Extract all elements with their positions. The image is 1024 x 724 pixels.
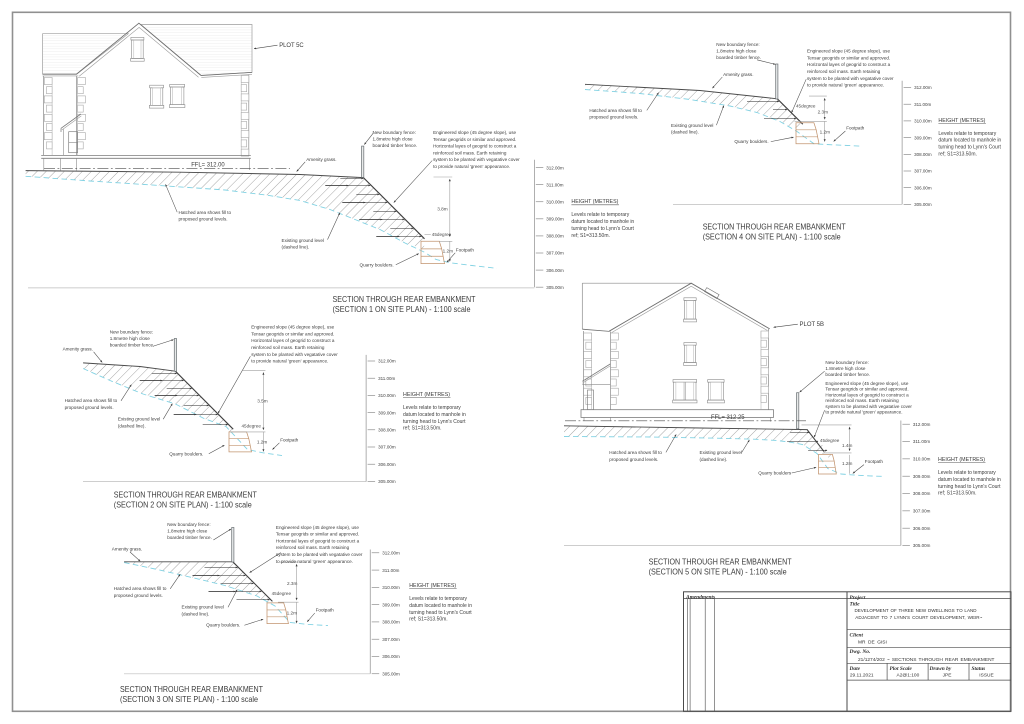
svg-text:HEIGHT (METRES): HEIGHT (METRES) <box>571 199 618 205</box>
svg-text:306.00m: 306.00m <box>378 462 396 467</box>
svg-text:1.2m: 1.2m <box>820 129 831 134</box>
svg-text:proposed ground levels.: proposed ground levels. <box>609 457 658 462</box>
svg-text:45degree: 45degree <box>432 232 452 237</box>
svg-text:JPE: JPE <box>943 672 952 678</box>
svg-text:ISSUE: ISSUE <box>979 672 993 678</box>
svg-text:A2@1:100: A2@1:100 <box>897 672 920 678</box>
svg-text:307.00m: 307.00m <box>546 251 564 256</box>
svg-text:308.00m: 308.00m <box>546 234 564 239</box>
svg-text:reinforced soil mass. Earth r: reinforced soil mass. Earth retaining <box>251 345 325 350</box>
svg-text:New boundary fence:: New boundary fence: <box>167 522 210 527</box>
svg-text:reinforced soil mass. Earth r: reinforced soil mass. Earth retaining <box>825 398 899 403</box>
svg-text:Quarry boulders: Quarry boulders <box>758 470 792 475</box>
svg-text:to provide natural 'green' app: to provide natural 'green' appearance. <box>807 83 884 88</box>
svg-text:29.11.2021: 29.11.2021 <box>850 672 874 678</box>
svg-text:datum located to manhole in: datum located to manhole in <box>938 477 1001 483</box>
svg-text:Amenity grass.: Amenity grass. <box>112 547 142 552</box>
svg-text:1.2m: 1.2m <box>287 611 298 616</box>
svg-text:309.00m: 309.00m <box>546 217 564 222</box>
svg-text:45degree: 45degree <box>820 438 840 443</box>
svg-text:305.00m: 305.00m <box>546 285 564 290</box>
svg-text:FFL= 312.00: FFL= 312.00 <box>191 162 225 169</box>
svg-text:New boundary fence:: New boundary fence: <box>373 130 416 135</box>
svg-text:Dwg. No.: Dwg. No. <box>849 649 871 655</box>
svg-text:ref; S1=313.50m.: ref; S1=313.50m. <box>938 491 977 497</box>
svg-text:Horizontal layes of geogrid to: Horizontal layes of geogrid to construct… <box>251 338 335 343</box>
svg-text:312.00m: 312.00m <box>913 422 931 427</box>
svg-text:Existing ground level: Existing ground level <box>282 238 324 243</box>
svg-text:SECTION THROUGH REAR EMBANKMEN: SECTION THROUGH REAR EMBANKMENT <box>703 222 846 231</box>
svg-text:306.00m: 306.00m <box>382 654 400 659</box>
svg-text:ref; S1=313.50m.: ref; S1=313.50m. <box>571 233 610 239</box>
svg-text:system to be planted with vega: system to be planted with vegatative cov… <box>433 157 520 162</box>
svg-text:Client: Client <box>850 632 864 638</box>
svg-text:turning head to Lynn's Court: turning head to Lynn's Court <box>938 145 1001 151</box>
svg-text:Existing ground level: Existing ground level <box>182 605 224 610</box>
svg-text:306.00m: 306.00m <box>914 185 932 190</box>
svg-text:Amenity grass.: Amenity grass. <box>306 157 336 162</box>
svg-text:Horizontal layes of geogrid to: Horizontal layes of geogrid to construct… <box>433 144 517 149</box>
svg-text:Horizontal layes of geogrid to: Horizontal layes of geogrid to construct… <box>825 392 909 397</box>
svg-text:2.3m: 2.3m <box>818 109 829 114</box>
svg-text:reinforced soil mass. Earth r: reinforced soil mass. Earth retaining <box>433 150 507 155</box>
svg-text:ref; S1=313.50m.: ref; S1=313.50m. <box>403 426 442 432</box>
svg-text:(SECTION 5 ON SITE PLAN) - 1:1: (SECTION 5 ON SITE PLAN) - 1:100 scale <box>649 567 787 576</box>
svg-text:310.00m: 310.00m <box>378 393 396 398</box>
svg-text:312.00m: 312.00m <box>914 85 932 90</box>
svg-text:Horizontal layes of geogrid to: Horizontal layes of geogrid to construct… <box>807 62 891 67</box>
svg-text:Amendments: Amendments <box>685 595 715 601</box>
svg-text:reinforced soil mass. Earth r: reinforced soil mass. Earth retaining <box>276 545 350 550</box>
svg-text:1.2m: 1.2m <box>842 461 853 466</box>
svg-text:(dashed line).: (dashed line). <box>671 130 699 135</box>
svg-text:(dashed line).: (dashed line). <box>182 611 210 616</box>
svg-text:turning head to Lynn's Court: turning head to Lynn's Court <box>403 419 466 425</box>
svg-text:305.00m: 305.00m <box>382 671 400 676</box>
svg-text:312.00m: 312.00m <box>382 551 400 556</box>
svg-text:Levels relate to temporary: Levels relate to temporary <box>938 131 996 137</box>
svg-text:HEIGHT (METRES): HEIGHT (METRES) <box>409 583 456 589</box>
svg-text:Quarry boulders.: Quarry boulders. <box>206 623 240 628</box>
svg-text:SECTION THROUGH REAR EMBANKMEN: SECTION THROUGH REAR EMBANKMENT <box>649 558 792 567</box>
svg-text:Levels relate to temporary: Levels relate to temporary <box>403 405 461 411</box>
svg-text:turning head to Lynn's Court: turning head to Lynn's Court <box>571 226 634 232</box>
svg-text:Existing ground level: Existing ground level <box>700 450 742 455</box>
svg-text:309.00m: 309.00m <box>382 602 400 607</box>
svg-text:308.00m: 308.00m <box>913 491 931 496</box>
svg-text:Hatched area shows fill to: Hatched area shows fill to <box>179 210 232 215</box>
svg-text:proposed ground levels.: proposed ground levels. <box>589 115 638 120</box>
svg-text:Status: Status <box>972 666 986 672</box>
svg-text:Engineered slope (45 degree sl: Engineered slope (45 degree slope), use <box>251 325 334 330</box>
svg-text:(SECTION 3 ON SITE PLAN) - 1:1: (SECTION 3 ON SITE PLAN) - 1:100 scale <box>120 695 258 704</box>
svg-text:SECTION THROUGH REAR EMBANKMEN: SECTION THROUGH REAR EMBANKMENT <box>120 685 263 694</box>
svg-text:boarded timber fence.: boarded timber fence. <box>167 535 212 540</box>
svg-text:datum located to manhole in: datum located to manhole in <box>571 219 634 225</box>
svg-text:Date: Date <box>849 666 861 672</box>
svg-text:Footpath: Footpath <box>865 459 884 464</box>
svg-text:HEIGHT (METRES): HEIGHT (METRES) <box>403 392 450 398</box>
svg-text:system to be planted with vega: system to be planted with vegatative cov… <box>807 76 894 81</box>
svg-text:proposed ground levels.: proposed ground levels. <box>114 593 163 598</box>
svg-text:FFL= 312.25: FFL= 312.25 <box>711 414 745 421</box>
svg-text:proposed ground levels.: proposed ground levels. <box>65 405 114 410</box>
svg-text:system to be planted with vega: system to be planted with vegatative cov… <box>251 352 338 357</box>
svg-text:Footpath: Footpath <box>456 247 475 252</box>
svg-text:Tensar geogrids or similar and: Tensar geogrids or similar and approved. <box>433 137 516 142</box>
svg-text:307.00m: 307.00m <box>914 169 932 174</box>
svg-text:310.00m: 310.00m <box>913 457 931 462</box>
svg-text:305.00m: 305.00m <box>914 202 932 207</box>
svg-text:Tensar geogrids or similar and: Tensar geogrids or similar and approved. <box>825 387 908 392</box>
svg-text:Amenity grass.: Amenity grass. <box>63 347 93 352</box>
svg-text:Hatched area shows fill to: Hatched area shows fill to <box>65 398 118 403</box>
svg-text:309.00m: 309.00m <box>914 135 932 140</box>
svg-text:Existing ground level: Existing ground level <box>671 123 713 128</box>
svg-text:Amenity grass.: Amenity grass. <box>723 72 753 77</box>
svg-text:Tensar geogrids or similar and: Tensar geogrids or similar and approved. <box>251 331 334 336</box>
svg-text:311.00m: 311.00m <box>378 376 395 381</box>
svg-text:reinforced soil mass. Earth r: reinforced soil mass. Earth retaining <box>807 69 881 74</box>
svg-text:3.5m: 3.5m <box>257 399 268 404</box>
svg-text:PLOT 5C: PLOT 5C <box>279 42 304 49</box>
svg-text:309.00m: 309.00m <box>913 474 931 479</box>
svg-text:Hatched area shows fill to: Hatched area shows fill to <box>114 586 167 591</box>
svg-text:1.8metre high close: 1.8metre high close <box>110 336 151 341</box>
svg-text:307.00m: 307.00m <box>382 637 400 642</box>
svg-text:1.2m: 1.2m <box>443 249 454 254</box>
svg-text:datum located to manhole in: datum located to manhole in <box>938 138 1001 144</box>
svg-text:system to be planted with vega: system to be planted with vegatative cov… <box>276 552 363 557</box>
svg-text:Hatched area shows fill to: Hatched area shows fill to <box>609 450 662 455</box>
svg-text:Footpath: Footpath <box>280 437 299 442</box>
svg-text:Engineered slope (45 degree sl: Engineered slope (45 degree slope), use <box>825 381 908 386</box>
svg-text:307.00m: 307.00m <box>913 509 931 514</box>
svg-text:311.00m: 311.00m <box>914 102 931 107</box>
svg-text:309.00m: 309.00m <box>378 410 396 415</box>
svg-text:310.00m: 310.00m <box>382 585 400 590</box>
svg-text:turning head to Lynn's Court: turning head to Lynn's Court <box>938 484 1001 490</box>
svg-text:306.00m: 306.00m <box>546 268 564 273</box>
svg-text:311.00m: 311.00m <box>913 439 930 444</box>
svg-text:Hatched area shows fill to: Hatched area shows fill to <box>589 108 642 113</box>
svg-text:New boundary fence:: New boundary fence: <box>110 330 153 335</box>
svg-text:307.00m: 307.00m <box>378 445 396 450</box>
svg-text:New boundary fence:: New boundary fence: <box>716 42 759 47</box>
svg-text:45degree: 45degree <box>242 424 262 429</box>
svg-text:(dashed line).: (dashed line). <box>282 245 310 250</box>
svg-text:Engineered slope (45 degree sl: Engineered slope (45 degree slope), use <box>807 49 890 54</box>
svg-text:MR DE GISI: MR DE GISI <box>858 640 887 646</box>
svg-text:PLOT 5B: PLOT 5B <box>800 321 825 328</box>
svg-text:system to be planted with vega: system to be planted with vegatative cov… <box>825 404 912 409</box>
svg-text:SECTION THROUGH REAR EMBANKMEN: SECTION THROUGH REAR EMBANKMENT <box>114 490 257 499</box>
svg-text:Quarry boulders.: Quarry boulders. <box>734 139 768 144</box>
svg-text:(SECTION 4 ON SITE PLAN) - 1:1: (SECTION 4 ON SITE PLAN) - 1:100 scale <box>703 232 841 241</box>
svg-text:to provide natural 'green' app: to provide natural 'green' appearance. <box>825 410 902 415</box>
svg-text:312.00m: 312.00m <box>546 165 564 170</box>
svg-text:boarded timber fence.: boarded timber fence. <box>825 372 870 377</box>
svg-text:datum located to manhole in: datum located to manhole in <box>403 412 466 418</box>
svg-text:Plot Scale: Plot Scale <box>890 666 913 672</box>
svg-text:305.00m: 305.00m <box>913 543 931 548</box>
svg-text:Tensar geogrids or similar and: Tensar geogrids or similar and approved. <box>807 55 890 60</box>
svg-text:45degree: 45degree <box>272 591 292 596</box>
svg-text:ADJACENT TO 7 LYNN'S COURT DEV: ADJACENT TO 7 LYNN'S COURT DEVELOPMENT, … <box>855 615 982 621</box>
svg-text:306.00m: 306.00m <box>913 526 931 531</box>
svg-text:Footpath: Footpath <box>846 126 865 131</box>
svg-text:308.00m: 308.00m <box>378 428 396 433</box>
svg-text:311.00m: 311.00m <box>382 568 399 573</box>
svg-text:to provide natural 'green' app: to provide natural 'green' appearance. <box>433 164 510 169</box>
svg-text:boarded timber fence.: boarded timber fence. <box>373 143 418 148</box>
svg-text:Existing ground level: Existing ground level <box>118 417 160 422</box>
svg-text:HEIGHT (METRES): HEIGHT (METRES) <box>938 457 985 463</box>
svg-text:310.00m: 310.00m <box>914 119 932 124</box>
svg-text:2.3m: 2.3m <box>287 581 298 586</box>
svg-text:310.00m: 310.00m <box>546 199 564 204</box>
svg-text:1.8metre high close: 1.8metre high close <box>373 137 414 142</box>
svg-text:proposed ground levels.: proposed ground levels. <box>179 217 228 222</box>
svg-text:305.00m: 305.00m <box>378 479 396 484</box>
svg-text:1.2m: 1.2m <box>257 440 268 445</box>
svg-text:HEIGHT (METRES): HEIGHT (METRES) <box>938 118 985 124</box>
svg-text:Drawn by: Drawn by <box>929 666 952 672</box>
svg-text:ref; S1=313.50m.: ref; S1=313.50m. <box>409 617 448 623</box>
svg-text:45degree: 45degree <box>796 104 816 109</box>
svg-text:Quarry boulders.: Quarry boulders. <box>169 451 203 456</box>
svg-text:1.4m: 1.4m <box>842 443 853 448</box>
svg-text:Levels relate to temporary: Levels relate to temporary <box>409 596 467 602</box>
svg-text:312.00m: 312.00m <box>378 359 396 364</box>
svg-text:(SECTION 2 ON SITE PLAN) - 1:1: (SECTION 2 ON SITE PLAN) - 1:100 scale <box>114 500 252 509</box>
svg-text:1.8metre high close: 1.8metre high close <box>716 48 757 53</box>
svg-text:datum located to manhole in: datum located to manhole in <box>409 603 472 609</box>
svg-text:(SECTION 1 ON SITE PLAN) - 1:1: (SECTION 1 ON SITE PLAN) - 1:100 scale <box>333 305 471 314</box>
svg-text:Footpath: Footpath <box>316 608 335 613</box>
svg-text:Horizontal layes of geogrid to: Horizontal layes of geogrid to construct… <box>276 538 360 543</box>
svg-text:Quarry boulders.: Quarry boulders. <box>360 262 394 267</box>
svg-text:turning head to Lynn's Court: turning head to Lynn's Court <box>409 610 472 616</box>
svg-text:308.00m: 308.00m <box>914 152 932 157</box>
svg-text:to provide natural 'green' app: to provide natural 'green' appearance. <box>276 559 353 564</box>
svg-text:ref; S1=313.50m.: ref; S1=313.50m. <box>938 152 977 158</box>
svg-text:Levels relate to temporary: Levels relate to temporary <box>938 470 996 476</box>
svg-text:to provide natural 'green' app: to provide natural 'green' appearance. <box>251 359 328 364</box>
svg-text:SECTION THROUGH REAR EMBANKMEN: SECTION THROUGH REAR EMBANKMENT <box>333 295 476 304</box>
svg-text:Title: Title <box>850 601 861 607</box>
svg-text:311.00m: 311.00m <box>546 182 563 187</box>
svg-text:Tensar geogrids or similar and: Tensar geogrids or similar and approved. <box>276 532 359 537</box>
svg-text:New boundary fence:: New boundary fence: <box>825 360 868 365</box>
svg-text:308.00m: 308.00m <box>382 620 400 625</box>
svg-text:Project: Project <box>850 595 866 601</box>
svg-text:(dashed line).: (dashed line). <box>118 423 146 428</box>
svg-text:21/1274/202 ~ SECTIONS THROUGH: 21/1274/202 ~ SECTIONS THROUGH REAR EMBA… <box>858 657 995 663</box>
svg-text:DEVELOPMENT OF THREE NEW DWELL: DEVELOPMENT OF THREE NEW DWELLINGS TO LA… <box>855 608 977 614</box>
svg-text:boarded timber fence.: boarded timber fence. <box>110 343 155 348</box>
svg-text:3.8m: 3.8m <box>437 206 448 211</box>
svg-text:Levels relate to temporary: Levels relate to temporary <box>571 212 629 218</box>
svg-text:Engineered slope (45 degree sl: Engineered slope (45 degree slope), use <box>433 130 516 135</box>
svg-text:Engineered slope (45 degree sl: Engineered slope (45 degree slope), use <box>276 525 359 530</box>
svg-text:(dashed line).: (dashed line). <box>700 457 728 462</box>
svg-text:1.8metre high close: 1.8metre high close <box>825 366 866 371</box>
svg-text:boarded timber fence.: boarded timber fence. <box>716 55 761 60</box>
svg-text:1.8metre high close: 1.8metre high close <box>167 529 208 534</box>
